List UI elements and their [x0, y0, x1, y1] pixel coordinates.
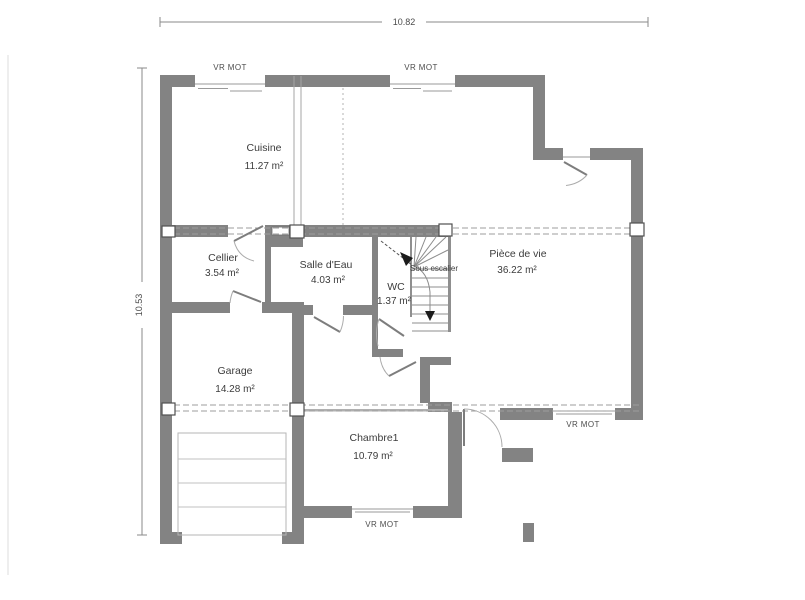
room-name-wc: WC: [387, 281, 405, 293]
wall-right: [631, 160, 643, 420]
post: [439, 224, 452, 236]
wall-cellier-bottom-b: [262, 302, 304, 313]
window-top-left: VR MOT: [195, 63, 265, 91]
door-leaf: [314, 317, 340, 332]
door-leaf: [379, 319, 404, 336]
wall-sde-bottom-b: [343, 305, 373, 315]
door-wc: [376, 319, 404, 346]
door-swing-arc: [230, 291, 233, 303]
door-salle-deau: [314, 316, 344, 332]
room-name-salle-deau: Salle d'Eau: [300, 259, 353, 271]
floor-plan: 10.82 10.53: [0, 0, 805, 600]
door-swing-arc: [340, 316, 344, 332]
garage-door: [178, 433, 286, 535]
door-cellier-garage: [230, 291, 261, 303]
door-opening: [230, 302, 262, 313]
window-label: VR MOT: [566, 420, 600, 429]
wall-hall-b: [420, 357, 451, 365]
room-area-wc: 1.37 m²: [377, 296, 412, 307]
room-area-garage: 14.28 m²: [215, 384, 255, 395]
wall-hall-a: [372, 349, 403, 357]
wall-sde-bottom-a: [304, 305, 313, 315]
window-label: VR MOT: [404, 63, 438, 72]
door-opening: [563, 148, 590, 160]
wall-garage-right: [292, 313, 304, 544]
window-label: VR MOT: [365, 520, 399, 529]
window-opening: [390, 75, 455, 87]
door-opening: [313, 305, 343, 315]
room-area-piece-de-vie: 36.22 m²: [497, 265, 537, 276]
window-top-center: VR MOT: [390, 63, 455, 91]
post: [290, 403, 304, 416]
room-name-garage: Garage: [217, 365, 252, 377]
stair-winder-line: [414, 237, 436, 267]
floor-plan-drawing: 10.82 10.53: [0, 0, 805, 600]
door-swing-arc: [380, 357, 389, 376]
wall-garage-stub-left: [160, 532, 182, 544]
room-area-chambre1: 10.79 m²: [353, 451, 393, 462]
porch-pillar: [523, 523, 534, 542]
room-name-cellier: Cellier: [208, 252, 238, 264]
room-name-chambre1: Chambre1: [349, 432, 398, 444]
stair-winder-line: [414, 237, 446, 267]
door-piece-de-vie-side: [564, 162, 587, 186]
window-opening: [195, 75, 265, 87]
room-area-cellier: 3.54 m²: [205, 268, 240, 279]
room-name-piece-de-vie: Pièce de vie: [489, 248, 546, 260]
room-area-salle-deau: 4.03 m²: [311, 275, 346, 286]
window-label: VR MOT: [213, 63, 247, 72]
dimension-horizontal: 10.82: [160, 13, 648, 27]
post: [162, 403, 175, 415]
wall-cellier-bottom-a: [160, 302, 230, 313]
wall-entry-front: [502, 448, 533, 462]
post: [630, 223, 644, 236]
door-leaf: [564, 162, 587, 175]
stair-arrow-curve: [414, 266, 430, 316]
door-leaf: [233, 291, 261, 302]
room-area-cuisine: 11.27 m²: [245, 161, 284, 172]
stairs-label: Sous escalier: [410, 264, 458, 273]
dimension-width-label: 10.82: [393, 17, 416, 27]
stair-arrow-start: [425, 311, 435, 321]
wall-step-vertical: [533, 87, 545, 148]
post: [162, 226, 175, 237]
wall-entry-left: [448, 412, 462, 518]
garage-door-outline: [178, 433, 286, 535]
window-bottom-center: VR MOT: [352, 506, 413, 529]
wall-cellier-divider: [265, 237, 271, 305]
door-leaf: [389, 362, 416, 376]
door-entrance: [464, 409, 502, 447]
door-swing-arc: [464, 409, 502, 447]
wall-hall-vertical: [420, 365, 430, 403]
door-swing-arc: [566, 175, 587, 186]
door-hallway: [380, 357, 416, 376]
duct-box: [290, 225, 304, 238]
beam-lines: [165, 88, 640, 411]
dimension-vertical: 10.53: [134, 68, 147, 535]
room-name-cuisine: Cuisine: [246, 142, 281, 154]
wall-stair-right-thin: [448, 232, 451, 332]
duct: [290, 76, 304, 238]
dimension-height-label: 10.53: [134, 294, 144, 317]
